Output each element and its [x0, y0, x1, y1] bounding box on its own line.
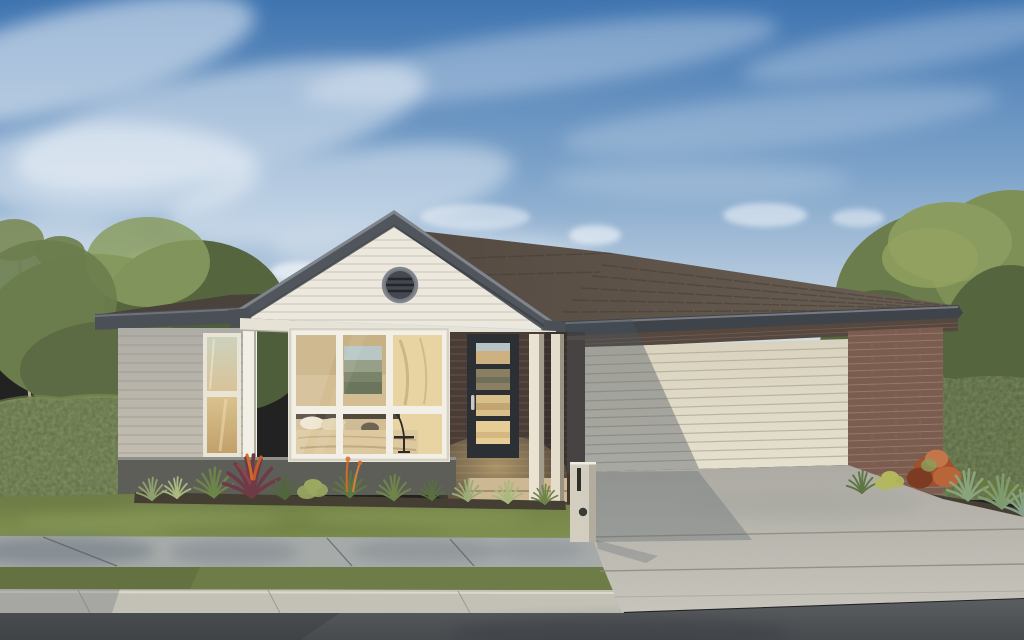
front-door [467, 334, 519, 458]
house-render-scene [0, 0, 1024, 640]
bedroom-interior [296, 335, 442, 458]
nature-strip-shadow [0, 567, 200, 589]
gable-vent-icon [382, 267, 418, 303]
letterbox-slot [577, 468, 581, 491]
window-mullion-1 [336, 333, 343, 458]
letterbox [570, 462, 596, 542]
footpath [0, 536, 607, 567]
curb [0, 589, 624, 613]
door-handle [471, 395, 475, 410]
window-transom [294, 406, 444, 414]
porch-post-1 [529, 334, 539, 502]
render-canvas [0, 0, 1024, 640]
letterbox-hole [579, 508, 587, 516]
side-window [203, 333, 241, 457]
bedroom-window [290, 329, 448, 460]
window-mullion-2 [386, 333, 393, 458]
porch-post-2 [551, 334, 560, 502]
